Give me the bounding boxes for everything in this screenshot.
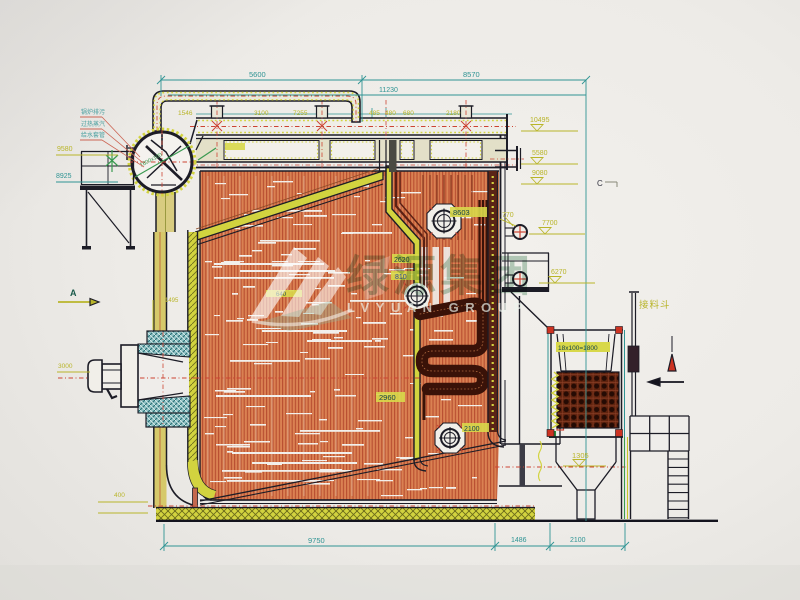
svg-text:485: 485 xyxy=(369,110,380,117)
svg-text:2180: 2180 xyxy=(446,110,461,117)
svg-text:400: 400 xyxy=(114,492,125,499)
svg-text:680: 680 xyxy=(403,110,414,117)
svg-text:1546: 1546 xyxy=(178,110,193,117)
svg-text:7255: 7255 xyxy=(293,110,308,117)
svg-text:1495: 1495 xyxy=(165,298,179,304)
svg-text:给水套管: 给水套管 xyxy=(81,131,105,139)
svg-text:11230: 11230 xyxy=(379,87,398,94)
svg-text:480: 480 xyxy=(385,110,396,117)
svg-text:C: C xyxy=(597,179,603,188)
svg-text:锅炉排污: 锅炉排污 xyxy=(81,108,105,116)
svg-text:1486: 1486 xyxy=(511,537,527,544)
svg-text:770: 770 xyxy=(502,212,514,219)
svg-text:9080: 9080 xyxy=(532,170,548,177)
svg-text:7700: 7700 xyxy=(542,220,558,227)
svg-text:9580: 9580 xyxy=(57,146,73,153)
svg-text:接料斗: 接料斗 xyxy=(639,299,671,311)
svg-text:3000: 3000 xyxy=(58,363,73,370)
svg-text:18x100=1800: 18x100=1800 xyxy=(558,345,598,352)
svg-text:3100: 3100 xyxy=(254,110,269,117)
svg-text:过热蒸汽: 过热蒸汽 xyxy=(81,120,105,128)
svg-text:5580: 5580 xyxy=(532,150,548,157)
svg-text:LVYUAN GROUP: LVYUAN GROUP xyxy=(347,300,529,315)
svg-text:8925: 8925 xyxy=(56,173,72,180)
svg-text:2100: 2100 xyxy=(570,537,586,544)
svg-text:10495: 10495 xyxy=(530,117,550,124)
svg-text:9750: 9750 xyxy=(308,536,325,545)
svg-text:8570: 8570 xyxy=(463,70,480,79)
svg-text:1305: 1305 xyxy=(572,451,589,460)
svg-text:绿源集团: 绿源集团 xyxy=(346,253,534,301)
svg-text:6270: 6270 xyxy=(551,269,567,276)
svg-text:8603: 8603 xyxy=(453,208,470,217)
svg-text:A: A xyxy=(70,288,77,298)
svg-text:2960: 2960 xyxy=(379,393,396,402)
svg-text:2100: 2100 xyxy=(464,426,480,433)
svg-text:5600: 5600 xyxy=(249,70,266,79)
